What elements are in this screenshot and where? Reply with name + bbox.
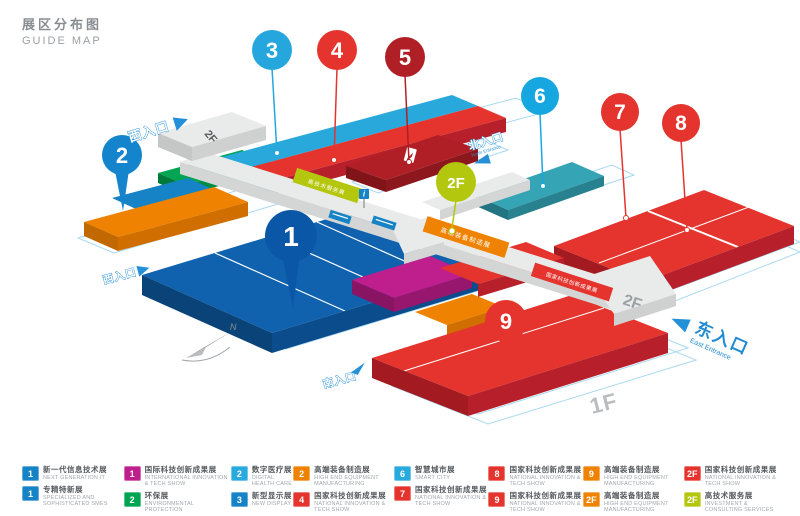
legend: 1 新一代信息技术展NEXT GENERATION IT 1 专精特新展SPEC…: [0, 466, 800, 510]
legend-en: HIGH END EQUIPMENT MANUFACTURING: [604, 475, 684, 488]
guide-map-page: 展区分布图 GUIDE MAP: [0, 0, 800, 516]
legend-zone-badge: 2F: [684, 492, 701, 507]
legend-column: 1 国际科技创新成果展INTERNATIONAL INNOVATION & TE…: [124, 466, 231, 514]
svg-text:西入口: 西入口: [102, 266, 138, 287]
legend-item: 2F 高端装备制造展HIGH END EQUIPMENT MANUFACTURI…: [583, 492, 684, 513]
legend-item: 6 智慧城市展SMART CITY: [394, 466, 488, 481]
legend-zh: 国家科技创新成果展: [415, 486, 488, 495]
arrow-left-icon: [669, 312, 691, 332]
legend-en: DIGITAL HEALTH CARE: [252, 475, 293, 488]
legend-zone-badge: 4: [293, 492, 310, 507]
legend-item: 9 高端装备制造展HIGH END EQUIPMENT MANUFACTURIN…: [583, 466, 684, 487]
floor-label-1f: 1F: [587, 388, 620, 419]
legend-en: SMART CITY: [415, 475, 455, 481]
legend-item: 2F 国家科技创新成果展NATIONAL INNOVATION & TECH S…: [684, 466, 782, 487]
legend-zh: 国家科技创新成果展: [314, 492, 394, 501]
legend-en: HIGH END EQUIPMENT MANUFACTURING: [314, 475, 394, 488]
legend-zh: 国家科技创新成果展: [705, 466, 782, 475]
legend-column: 2 数字医疗展DIGITAL HEALTH CARE 3 新型显示展NEW DI…: [231, 466, 293, 507]
legend-zh: 环保展: [145, 492, 231, 501]
pin-7: 7: [601, 93, 639, 131]
svg-text:8: 8: [675, 112, 687, 135]
legend-zone-badge: 2: [293, 466, 310, 481]
legend-item: 8 国家科技创新成果展NATIONAL INNOVATION & TECH SH…: [488, 466, 582, 487]
svg-text:2F: 2F: [447, 175, 465, 192]
svg-text:6: 6: [534, 85, 546, 108]
svg-text:3: 3: [266, 38, 278, 63]
legend-item: 4 国家科技创新成果展NATIONAL INNOVATION & TECH SH…: [293, 492, 394, 513]
title-english: GUIDE MAP: [22, 35, 102, 47]
legend-zh: 新型显示展: [252, 492, 292, 501]
legend-zh: 高端装备制造展: [314, 466, 394, 475]
legend-en: INTERNATIONAL INNOVATION & TECH SHOW: [145, 475, 231, 488]
legend-en: NATIONAL INNOVATION & TECH SHOW: [509, 501, 582, 514]
legend-en: ENVIRONMENTAL PROTECTION: [145, 501, 231, 514]
pin-5: 5: [385, 37, 425, 77]
legend-zh: 国际科技创新成果展: [145, 466, 231, 475]
legend-en: NATIONAL INNOVATION & TECH SHOW: [314, 501, 394, 514]
legend-en: NATIONAL INNOVATION & TECH SHOW: [705, 475, 782, 488]
legend-zh: 高技术服务展: [705, 492, 782, 501]
svg-text:5: 5: [399, 45, 411, 70]
legend-column: 2 高端装备制造展HIGH END EQUIPMENT MANUFACTURIN…: [293, 466, 394, 514]
legend-zh: 国家科技创新成果展: [509, 492, 582, 501]
legend-column: 9 高端装备制造展HIGH END EQUIPMENT MANUFACTURIN…: [583, 466, 684, 514]
legend-zh: 智慧城市展: [415, 466, 455, 475]
legend-item: 9 国家科技创新成果展NATIONAL INNOVATION & TECH SH…: [488, 492, 582, 513]
pin-6: 6: [521, 77, 559, 115]
legend-item: 2 环保展ENVIRONMENTAL PROTECTION: [124, 492, 231, 513]
entrance-east: 东入口 East Entrance: [665, 307, 753, 367]
legend-en: HIGH END EQUIPMENT MANUFACTURING: [604, 501, 684, 514]
legend-zone-badge: 3: [231, 492, 248, 507]
svg-text:4: 4: [331, 38, 344, 63]
pin-4: 4: [317, 30, 357, 70]
legend-zone-badge: 2: [231, 466, 248, 481]
svg-text:9: 9: [500, 309, 512, 334]
legend-zone-badge: 2F: [684, 466, 701, 481]
entrance-south: 南入口: [320, 363, 369, 391]
legend-zone-badge: 2: [124, 492, 141, 507]
title-chinese: 展区分布图: [22, 14, 102, 33]
pin-8: 8: [662, 104, 700, 142]
legend-zh: 新一代信息技术展: [43, 466, 107, 475]
legend-item: 1 专精特新展SPECIALIZED AND SOPHISTICATED SME…: [22, 486, 124, 507]
legend-zone-badge: 1: [22, 466, 39, 481]
legend-item: 1 国际科技创新成果展INTERNATIONAL INNOVATION & TE…: [124, 466, 231, 487]
compass-n-label: N: [230, 322, 237, 332]
svg-text:1: 1: [283, 221, 299, 252]
legend-item: 3 新型显示展NEW DISPLAY: [231, 492, 293, 507]
legend-en: INVESTMENT & CONSULTING SERVICES: [705, 501, 782, 514]
legend-en: NEW DISPLAY: [252, 501, 292, 507]
legend-zh: 高端装备制造展: [604, 492, 684, 501]
legend-zone-badge: 9: [583, 466, 600, 481]
legend-zh: 数字医疗展: [252, 466, 293, 475]
legend-zone-badge: 8: [488, 466, 505, 481]
legend-zone-badge: 9: [488, 492, 505, 507]
legend-item: 2 数字医疗展DIGITAL HEALTH CARE: [231, 466, 293, 487]
legend-zone-badge: 1: [22, 486, 39, 501]
legend-zone-badge: 1: [124, 466, 141, 481]
legend-en: SPECIALIZED AND SOPHISTICATED SMES: [43, 495, 124, 508]
legend-column: 1 新一代信息技术展NEXT GENERATION IT 1 专精特新展SPEC…: [22, 466, 124, 507]
legend-zone-badge: 6: [394, 466, 411, 481]
legend-en: NEXT GENERATION IT: [43, 475, 107, 481]
legend-zone-badge: 2F: [583, 492, 600, 507]
svg-text:7: 7: [614, 101, 626, 124]
pin-2f: 2F: [436, 162, 476, 202]
legend-zone-badge: 7: [394, 486, 411, 501]
legend-item: 2 高端装备制造展HIGH END EQUIPMENT MANUFACTURIN…: [293, 466, 394, 487]
legend-zh: 国家科技创新成果展: [509, 466, 582, 475]
pin-3: 3: [252, 30, 292, 70]
legend-en: NATIONAL INNOVATION & TECH SHOW: [509, 475, 582, 488]
svg-text:2: 2: [116, 143, 128, 168]
legend-en: NATIONAL INNOVATION & TECH SHOW: [415, 495, 488, 508]
legend-column: 2F 国家科技创新成果展NATIONAL INNOVATION & TECH S…: [684, 466, 782, 514]
legend-zh: 专精特新展: [43, 486, 124, 495]
legend-item: 2F 高技术服务展INVESTMENT & CONSULTING SERVICE…: [684, 492, 782, 513]
legend-zh: 高端装备制造展: [604, 466, 684, 475]
guide-map-canvas: 2F 2F 高技术服务展 高端装备制造展 国家科技创新成果展 i: [0, 0, 800, 468]
page-title: 展区分布图 GUIDE MAP: [22, 14, 102, 47]
legend-column: 8 国家科技创新成果展NATIONAL INNOVATION & TECH SH…: [488, 466, 582, 514]
legend-item: 7 国家科技创新成果展NATIONAL INNOVATION & TECH SH…: [394, 486, 488, 507]
legend-item: 1 新一代信息技术展NEXT GENERATION IT: [22, 466, 124, 481]
legend-column: 6 智慧城市展SMART CITY 7 国家科技创新成果展NATIONAL IN…: [394, 466, 488, 507]
